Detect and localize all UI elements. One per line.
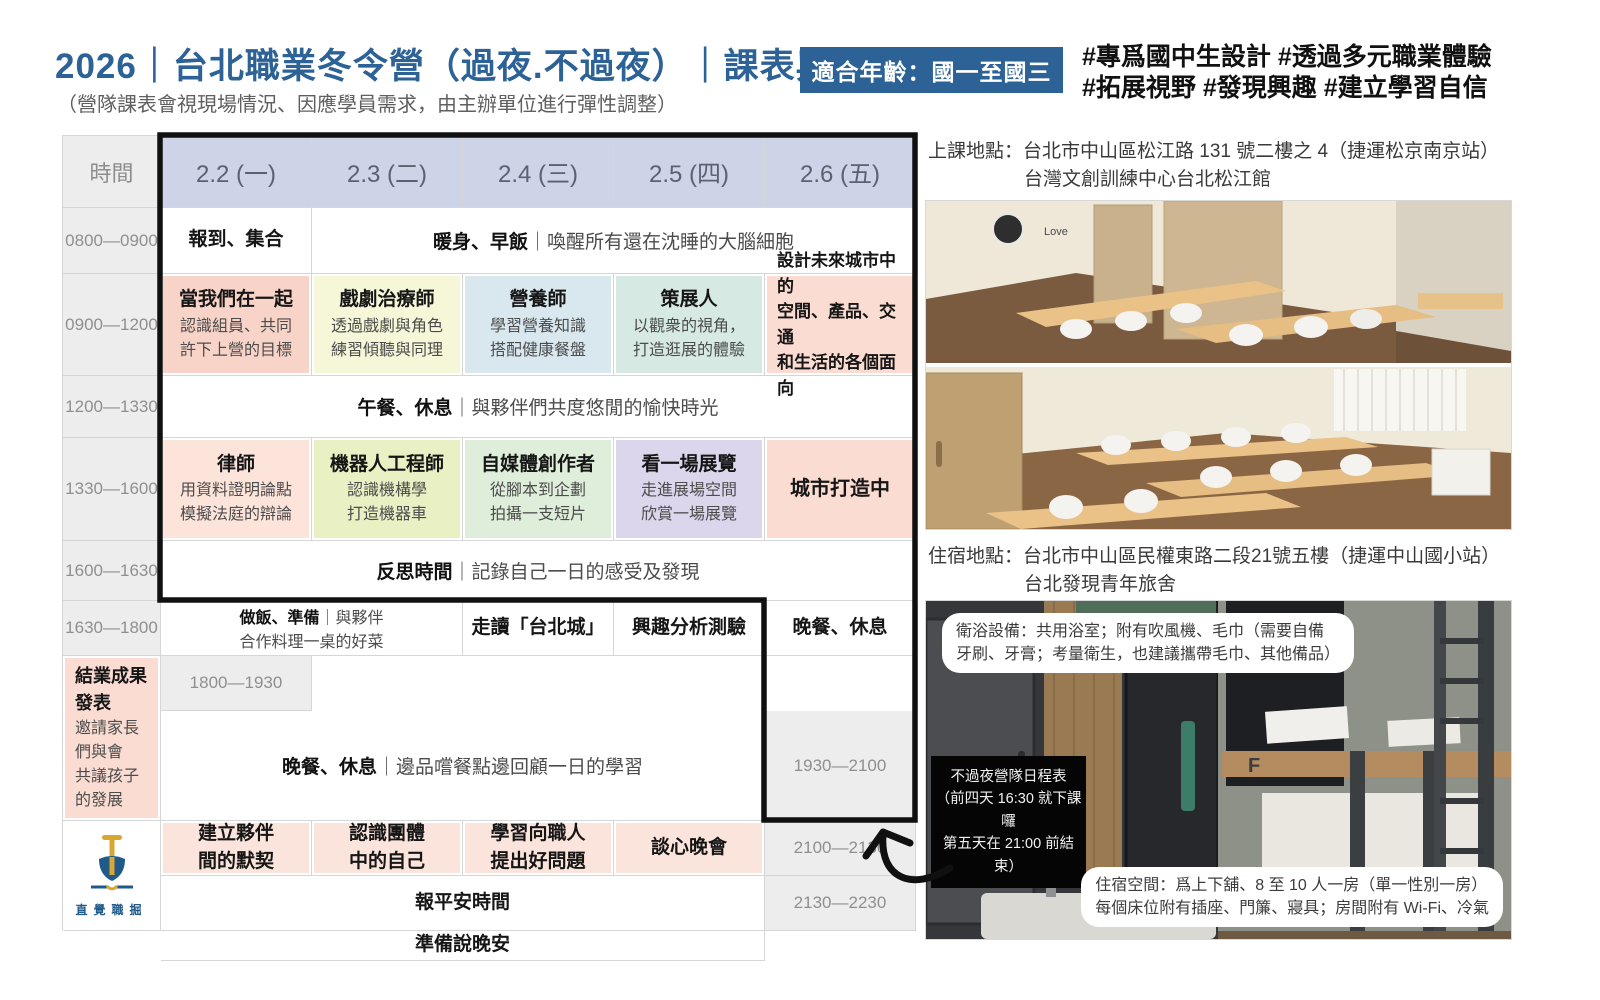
cell-title: 中的自己 bbox=[349, 848, 425, 877]
cell-title: 自媒體創作者 bbox=[481, 451, 595, 480]
schedule-cell: 學習向職人 提出好問題 bbox=[463, 821, 614, 876]
cell-desc: 練習傾聽與同理 bbox=[331, 339, 443, 363]
time-label: 2130—2230 bbox=[765, 876, 916, 931]
time-column-header: 時間 bbox=[63, 136, 161, 208]
schedule-cell: 報平安時間 bbox=[161, 876, 765, 931]
room-note-line2: 每個床位附有插座、門簾、寢具；房間附有 Wi-Fi、冷氣 bbox=[1095, 897, 1489, 920]
cell-desc: 打造機器車 bbox=[347, 503, 427, 527]
page-title: 2026｜台北職業冬令營（過夜.不過夜）｜課表與資訊 bbox=[55, 38, 904, 89]
cell-title: 反思時間 bbox=[376, 562, 452, 583]
cell-title: 設計未來城市中的 bbox=[777, 248, 907, 299]
cell-title: 間的默契 bbox=[198, 848, 274, 877]
schedule-cell: 策展人 以觀衆的視角， 打造逛展的體驗 bbox=[614, 274, 765, 376]
cell-title: 建立夥伴 bbox=[198, 820, 274, 849]
cell-title: 認識團體 bbox=[349, 820, 425, 849]
shovel-logo-icon bbox=[85, 833, 139, 895]
cell-desc: 以觀衆的視角， bbox=[633, 315, 745, 339]
cell-title: 機器人工程師 bbox=[330, 451, 444, 480]
schedule-table: 時間 2.2 (一) 2.3 (二) 2.4 (三) 2.5 (四) 2.6 (… bbox=[62, 135, 915, 930]
hashtag-line-2: #拓展視野 #發現興趣 #建立學習自信 bbox=[1082, 73, 1492, 104]
stay-location-line2: 台北發現青年旅舍 bbox=[928, 571, 1500, 599]
cell-title: 午餐、休息 bbox=[357, 398, 452, 419]
schedule-cell: 戲劇治療師 透過戲劇與角色 練習傾聽與同理 bbox=[312, 274, 463, 376]
schedule-cell: 晚餐、休息 bbox=[765, 601, 916, 656]
schedule-cell: 營養師 學習營養知識 搭配健康餐盤 bbox=[463, 274, 614, 376]
time-label: 0800—0900 bbox=[63, 208, 161, 274]
cell-desc: 欣賞一場展覽 bbox=[641, 503, 737, 527]
cell-title: 看一場展覽 bbox=[641, 451, 736, 480]
room-note-line1: 住宿空間：爲上下舖、8 至 10 人一房（單一性別一房） bbox=[1095, 874, 1489, 897]
svg-text:F: F bbox=[1248, 755, 1260, 777]
cell-desc: ｜邊品嚐餐點邊回顧一日的學習 bbox=[377, 757, 643, 778]
poster-page: 2026｜台北職業冬令營（過夜.不過夜）｜課表與資訊 （營隊課表會視現場情況、因… bbox=[0, 0, 1600, 1000]
schedule-cell: 律師 用資料證明論點 模擬法庭的辯論 bbox=[161, 438, 312, 541]
cell-desc: 用資料證明論點 bbox=[180, 479, 292, 503]
time-label: 2100—2130 bbox=[765, 821, 916, 876]
schedule-cell: 興趣分析測驗 bbox=[614, 601, 765, 656]
day-header: 2.3 (二) bbox=[312, 136, 463, 208]
hashtags: #專爲國中生設計 #透過多元職業體驗 #拓展視野 #發現興趣 #建立學習自信 bbox=[1082, 42, 1492, 104]
hostel-photo: F 衛浴設備：共用浴室；附有吹風機、毛巾（需要自備 牙刷、牙膏；考量衛生，也建議… bbox=[925, 600, 1512, 940]
cell-desc: 認識組員、共同 bbox=[180, 315, 292, 339]
day-camp-line1: 不過夜營隊日程表 bbox=[935, 766, 1082, 788]
cell-desc: ｜記錄自己一日的感受及發現 bbox=[453, 562, 700, 583]
schedule-cell: 當我們在一起 認識組員、共同 許下上營的目標 bbox=[161, 274, 312, 376]
schedule-cell: 晚餐、休息｜邊品嚐餐點邊回顧一日的學習 bbox=[161, 711, 765, 821]
schedule-cell: 設計未來城市中的 空間、產品、交通 和生活的各個面向 bbox=[765, 274, 916, 376]
cell-desc: 合作料理一桌的好菜 bbox=[239, 634, 383, 651]
cell-title: 學習向職人 bbox=[490, 820, 585, 849]
schedule-cell: 建立夥伴 間的默契 bbox=[161, 821, 312, 876]
time-label: 1200—1330 bbox=[63, 376, 161, 438]
cell-desc: ｜喚醒所有還在沈睡的大腦細胞 bbox=[528, 232, 794, 253]
day-camp-line3: 第五天在 21:00 前結束） bbox=[935, 833, 1082, 878]
cell-desc: 打造逛展的體驗 bbox=[633, 339, 745, 363]
schedule-cell: 城市打造中 bbox=[765, 438, 916, 541]
page-subtitle: （營隊課表會視現場情況、因應學員需求，由主辦單位進行彈性調整） bbox=[57, 88, 677, 117]
cell-desc: 搭配健康餐盤 bbox=[490, 339, 586, 363]
class-location: 上課地點：台北市中山區松江路 131 號二樓之 4（捷運松京南京站） 台灣文創訓… bbox=[928, 138, 1499, 194]
cell-desc: 拍攝一支短片 bbox=[490, 503, 586, 527]
day-header: 2.5 (四) bbox=[614, 136, 765, 208]
classroom-photo-illustration: Love bbox=[926, 201, 1511, 529]
cell-title: 空間、產品、交通 bbox=[777, 299, 907, 350]
day-header: 2.6 (五) bbox=[765, 136, 916, 208]
cell-desc: 透過戲劇與角色 bbox=[331, 315, 443, 339]
cell-title: 戲劇治療師 bbox=[339, 286, 434, 315]
cell-desc: 走進展場空間 bbox=[641, 479, 737, 503]
cell-title: 城市打造中 bbox=[790, 474, 890, 504]
schedule-cell-graduation: 結業成果發表 邀請家長們與會 共議孩子的發展 bbox=[63, 656, 161, 821]
brand-logo: 直覺職掘 bbox=[63, 821, 161, 931]
time-label: 1630—1800 bbox=[63, 601, 161, 656]
day-header: 2.4 (三) bbox=[463, 136, 614, 208]
schedule-cell: 走讀「台北城」 bbox=[463, 601, 614, 656]
time-label: 0900—1200 bbox=[63, 274, 161, 376]
room-note-bubble: 住宿空間：爲上下舖、8 至 10 人一房（單一性別一房） 每個床位附有插座、門簾… bbox=[1081, 867, 1503, 927]
cell-title: 營養師 bbox=[509, 286, 566, 315]
cell-title: 策展人 bbox=[660, 286, 717, 315]
schedule-cell: 談心晚會 bbox=[614, 821, 765, 876]
cell-desc: 邀請家長們與會 bbox=[75, 717, 152, 765]
time-label: 1800—1930 bbox=[161, 656, 312, 711]
logo-wordmark: 直覺職掘 bbox=[75, 901, 147, 918]
cell-title: 談心晚會 bbox=[651, 834, 727, 863]
schedule-cell: 午餐、休息｜與夥伴們共度悠閒的愉快時光 bbox=[161, 376, 916, 438]
bathroom-note-bubble: 衛浴設備：共用浴室；附有吹風機、毛巾（需要自備 牙刷、牙膏；考量衛生，也建議攜帶… bbox=[942, 613, 1354, 673]
schedule-cell: 機器人工程師 認識機構學 打造機器車 bbox=[312, 438, 463, 541]
cell-desc: 學習營養知識 bbox=[490, 315, 586, 339]
cell-desc: ｜與夥伴們共度悠閒的愉快時光 bbox=[453, 398, 719, 419]
cell-desc: 從腳本到企劃 bbox=[490, 479, 586, 503]
schedule-cell: 報到、集合 bbox=[161, 208, 312, 274]
stay-location-line1: 住宿地點：台北市中山區民權東路二段21號五樓（捷運中山國小站） bbox=[928, 543, 1500, 571]
time-label: 1930—2100 bbox=[765, 711, 916, 821]
classroom-photo: Love bbox=[925, 200, 1512, 530]
time-label: 1330—1600 bbox=[63, 438, 161, 541]
schedule-cell: 準備說晚安 bbox=[161, 931, 765, 961]
svg-text:Love: Love bbox=[1044, 226, 1068, 238]
day-camp-line2: （前四天 16:30 就下課囉 bbox=[935, 788, 1082, 833]
cell-title: 當我們在一起 bbox=[179, 286, 293, 315]
age-badge: 適合年齡：國一至國三 bbox=[800, 47, 1063, 93]
class-location-line1: 上課地點：台北市中山區松江路 131 號二樓之 4（捷運松京南京站） bbox=[928, 138, 1499, 166]
cell-title: 提出好問題 bbox=[490, 848, 585, 877]
cell-desc: 認識機構學 bbox=[347, 479, 427, 503]
schedule-cell: 看一場展覽 走進展場空間 欣賞一場展覽 bbox=[614, 438, 765, 541]
cell-desc: 共議孩子的發展 bbox=[75, 765, 152, 813]
schedule-cell: 反思時間｜記錄自己一日的感受及發現 bbox=[161, 541, 916, 601]
class-location-line2: 台灣文創訓練中心台北松江館 bbox=[928, 166, 1499, 194]
bathroom-note-line2: 牙刷、牙膏；考量衛生，也建議攜帶毛巾、其他備品） bbox=[956, 643, 1340, 666]
cell-desc: ｜與夥伴 bbox=[320, 610, 384, 627]
cell-title: 律師 bbox=[217, 451, 255, 480]
schedule-cell: 自媒體創作者 從腳本到企劃 拍攝一支短片 bbox=[463, 438, 614, 541]
cell-desc: 許下上營的目標 bbox=[180, 339, 292, 363]
time-label: 1600—1630 bbox=[63, 541, 161, 601]
hashtag-line-1: #專爲國中生設計 #透過多元職業體驗 bbox=[1082, 42, 1492, 73]
cell-title: 暖身、早飯 bbox=[433, 232, 528, 253]
day-header: 2.2 (一) bbox=[161, 136, 312, 208]
cell-title: 結業成果發表 bbox=[75, 663, 152, 717]
day-camp-note-box: 不過夜營隊日程表 （前四天 16:30 就下課囉 第五天在 21:00 前結束） bbox=[931, 756, 1086, 888]
schedule-cell: 認識團體 中的自己 bbox=[312, 821, 463, 876]
cell-desc: 模擬法庭的辯論 bbox=[180, 503, 292, 527]
stay-location: 住宿地點：台北市中山區民權東路二段21號五樓（捷運中山國小站） 台北發現青年旅舍 bbox=[928, 543, 1500, 599]
cell-title: 做飯、準備 bbox=[239, 610, 319, 627]
cell-title: 晚餐、休息 bbox=[282, 757, 377, 778]
schedule-cell: 做飯、準備｜與夥伴 合作料理一桌的好菜 bbox=[161, 601, 463, 656]
bathroom-note-line1: 衛浴設備：共用浴室；附有吹風機、毛巾（需要自備 bbox=[956, 620, 1340, 643]
